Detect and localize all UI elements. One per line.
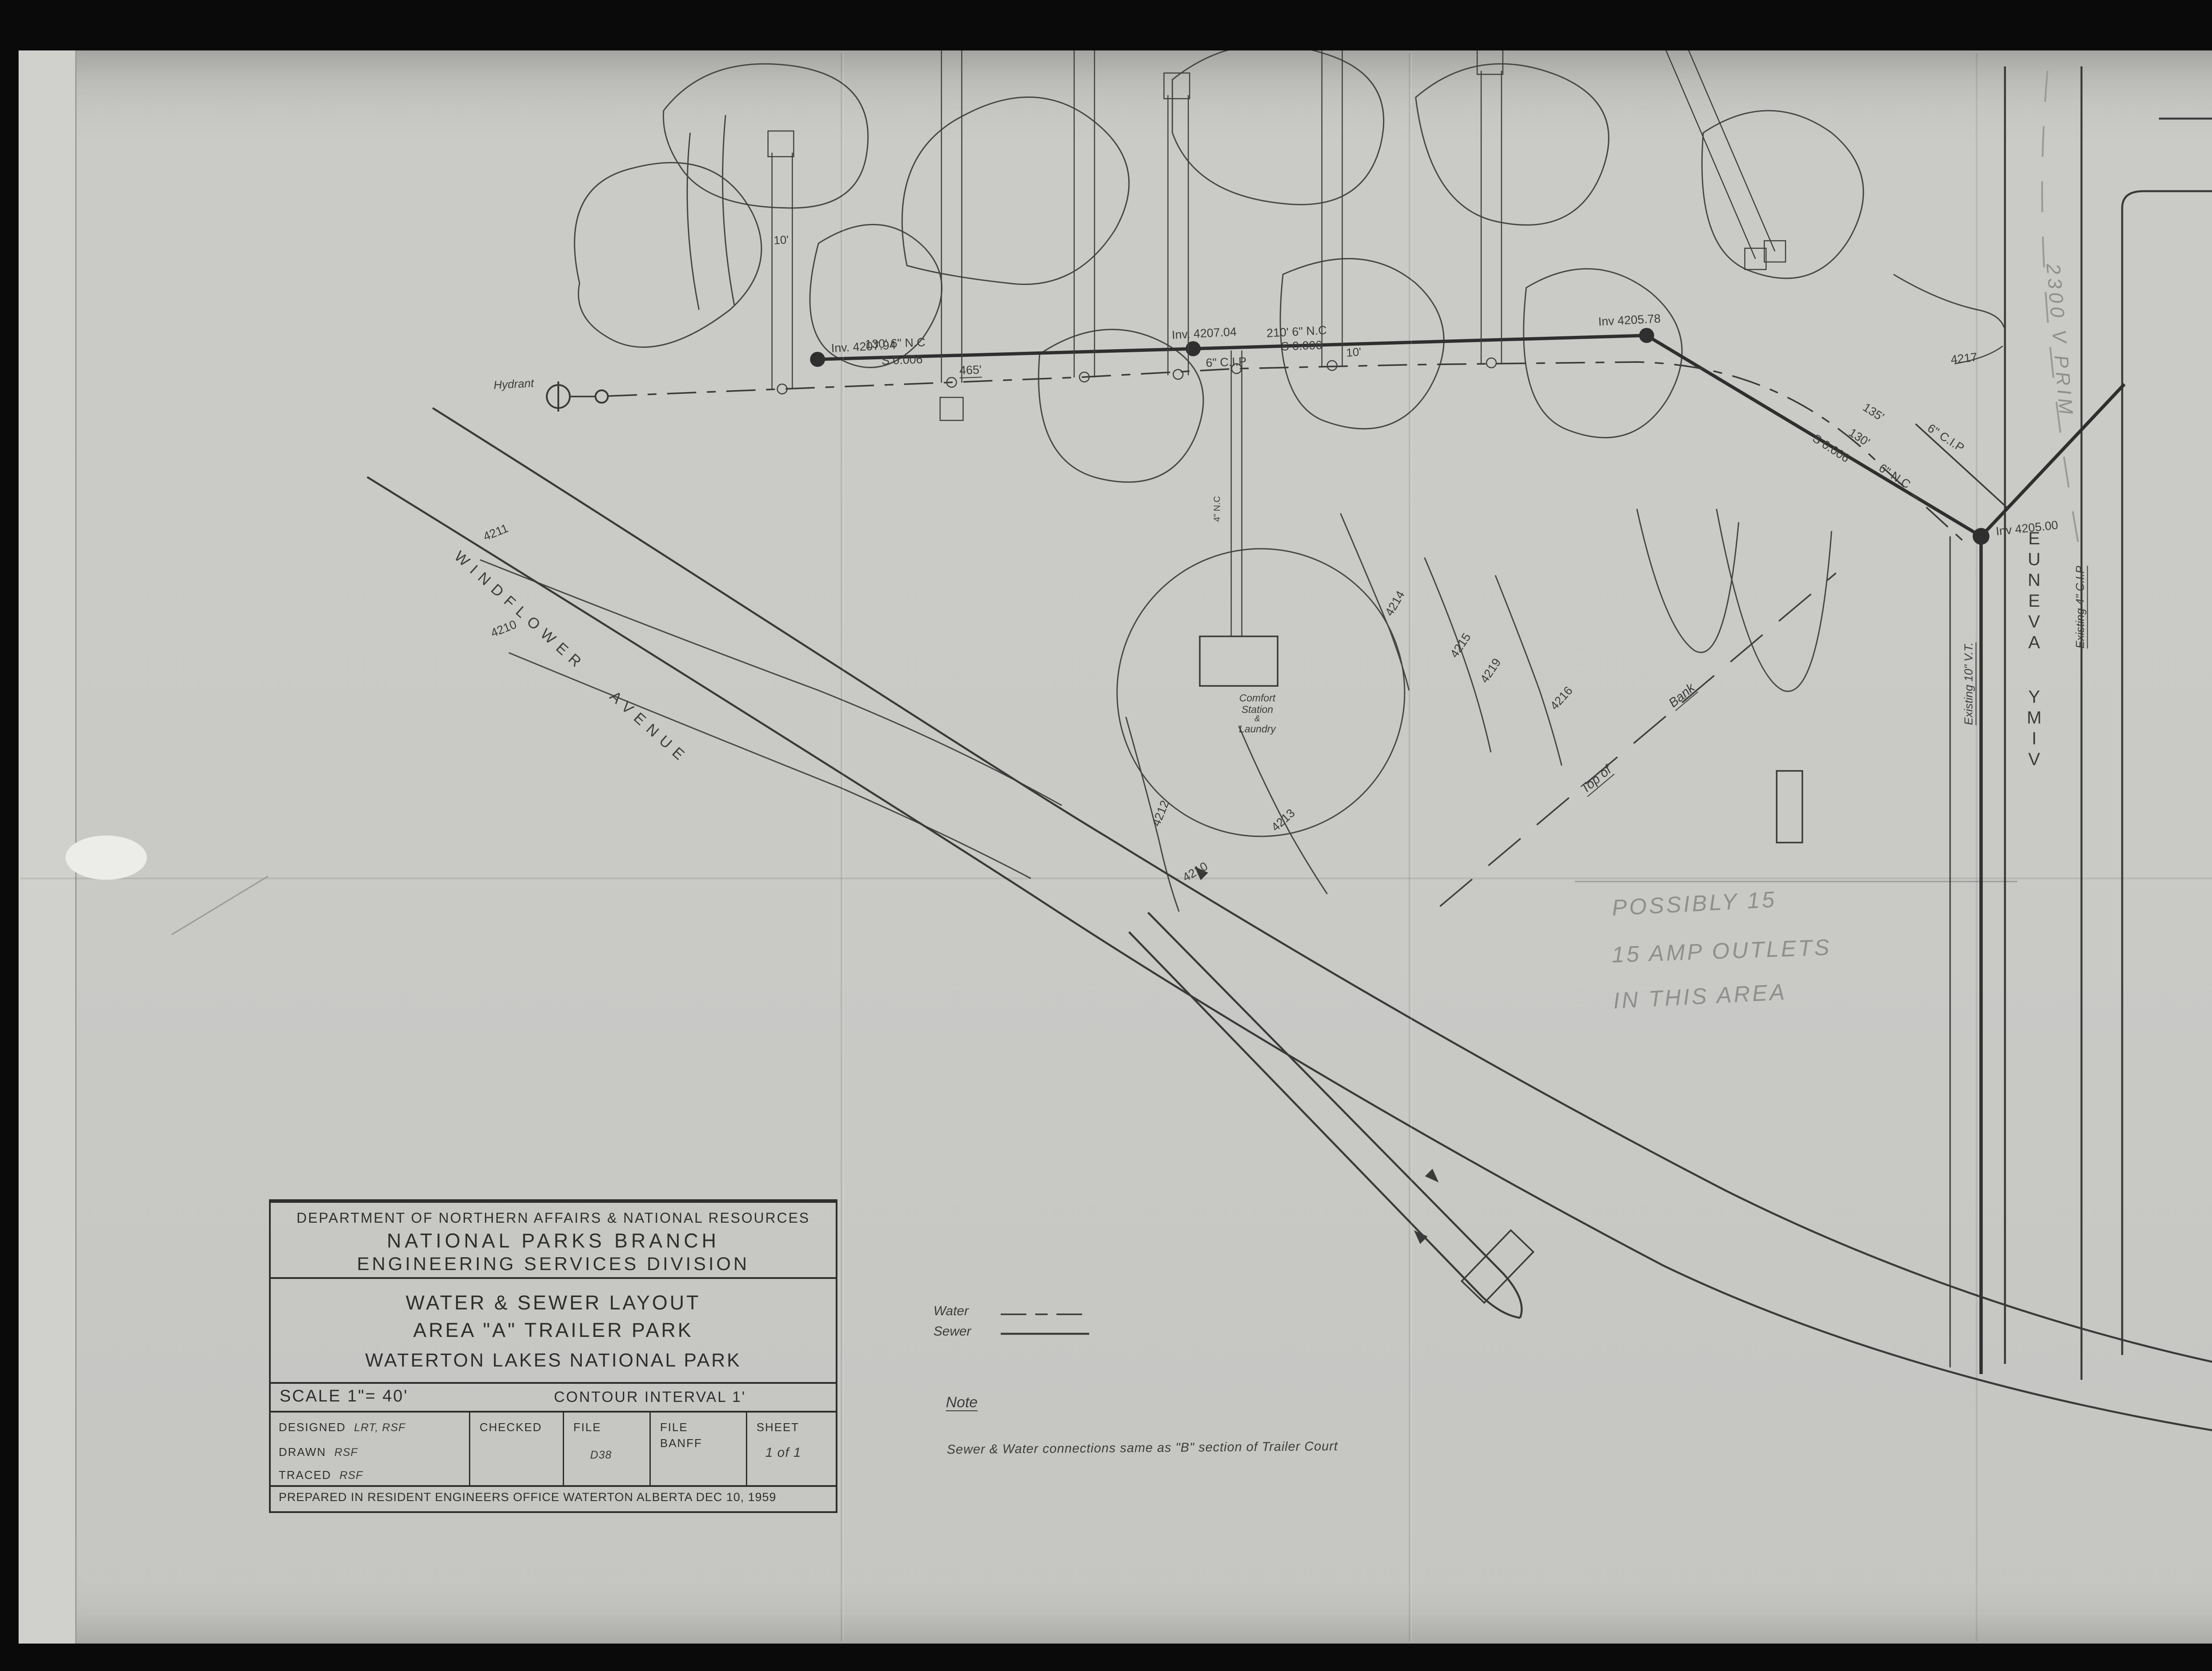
comfort-line4: Laundry	[1225, 723, 1290, 735]
designed-label: DESIGNED LRT, RSF	[279, 1421, 406, 1434]
note-heading: Note	[946, 1394, 978, 1411]
title-division: ENGINEERING SERVICES DIVISION	[271, 1253, 836, 1274]
water-dimension: 465'	[959, 363, 982, 377]
title-project-2: AREA "A" TRAILER PARK	[271, 1319, 836, 1342]
file-banff-label-1: FILE	[660, 1421, 688, 1434]
water-main-pipe-label: 6" C.I.P	[1206, 355, 1247, 370]
contour-label: 4217	[1950, 350, 1978, 367]
run1-grade: S 0.006	[881, 353, 923, 368]
title-project-1: WATER & SEWER LAYOUT	[271, 1291, 836, 1314]
street-label-vimy: EUNEVAYMIV	[2021, 528, 2047, 770]
drawing-sheet: Hydrant Inv. 4207.94 130' 6" N.C S 0.006…	[19, 50, 2212, 1644]
comfort-station-box	[1200, 636, 1278, 686]
film-scan-frame: Hydrant Inv. 4207.94 130' 6" N.C S 0.006…	[0, 0, 2212, 1671]
title-scale: SCALE 1"= 40'	[280, 1387, 408, 1406]
sheet-value: 1 of 1	[765, 1445, 801, 1460]
existing-cip-label: Existing 4" C.I.P	[2074, 566, 2087, 649]
file-label: FILE	[573, 1421, 601, 1434]
file-banff-label-2: BANFF	[660, 1436, 702, 1450]
run1-dimension: 130' 6" N.C	[865, 335, 926, 351]
title-block: DEPARTMENT OF NORTHERN AFFAIRS & NATIONA…	[269, 1199, 837, 1513]
traffic-arrows	[1194, 866, 1439, 1244]
sewer-lines	[818, 335, 2124, 1374]
traced-label-text: TRACED	[279, 1468, 331, 1482]
top-of-bank-line	[1440, 573, 1836, 906]
buildings	[1462, 771, 1802, 1303]
existing-vt-label: Existing 10" V.T.	[1962, 643, 1976, 725]
title-contour-interval: CONTOUR INTERVAL 1'	[554, 1389, 746, 1406]
file-value: D38	[590, 1449, 612, 1462]
title-branch: NATIONAL PARKS BRANCH	[271, 1229, 836, 1252]
dimension-10ft-a: 10'	[773, 233, 789, 247]
drawn-value: RSF	[334, 1446, 358, 1459]
water-lines	[570, 362, 2008, 545]
comfort-line1: Comfort	[1225, 692, 1290, 704]
dimension-10ft-b: 10'	[1346, 345, 1362, 360]
designed-label-text: DESIGNED	[279, 1421, 346, 1434]
legend-lines	[1001, 1314, 1089, 1334]
drawn-label: DRAWN RSF	[279, 1445, 358, 1459]
traced-value: RSF	[339, 1469, 363, 1482]
title-prepared: PREPARED IN RESIDENT ENGINEERS OFFICE WA…	[271, 1490, 836, 1504]
traced-label: TRACED RSF	[279, 1468, 363, 1482]
title-project-3: WATERTON LAKES NATIONAL PARK	[271, 1350, 836, 1371]
comfort-station-label: Comfort Station & Laundry	[1225, 692, 1290, 735]
run2-grade: S 0.006	[1281, 339, 1322, 354]
legend-sewer-label: Sewer	[933, 1324, 971, 1339]
comfort-line2: Station	[1225, 704, 1290, 715]
sheet-label: SHEET	[757, 1421, 799, 1434]
drawn-label-text: DRAWN	[279, 1445, 326, 1459]
service-pipe-label: 4" N.C	[1213, 496, 1223, 522]
title-department: DEPARTMENT OF NORTHERN AFFAIRS & NATIONA…	[271, 1210, 836, 1226]
torn-paper-notch	[65, 835, 147, 880]
checked-label: CHECKED	[480, 1421, 542, 1434]
hydrant-label: Hydrant	[493, 376, 534, 392]
legend-water-label: Water	[933, 1304, 968, 1319]
designed-value: LRT, RSF	[354, 1421, 405, 1434]
comfort-line3: &	[1225, 715, 1290, 723]
